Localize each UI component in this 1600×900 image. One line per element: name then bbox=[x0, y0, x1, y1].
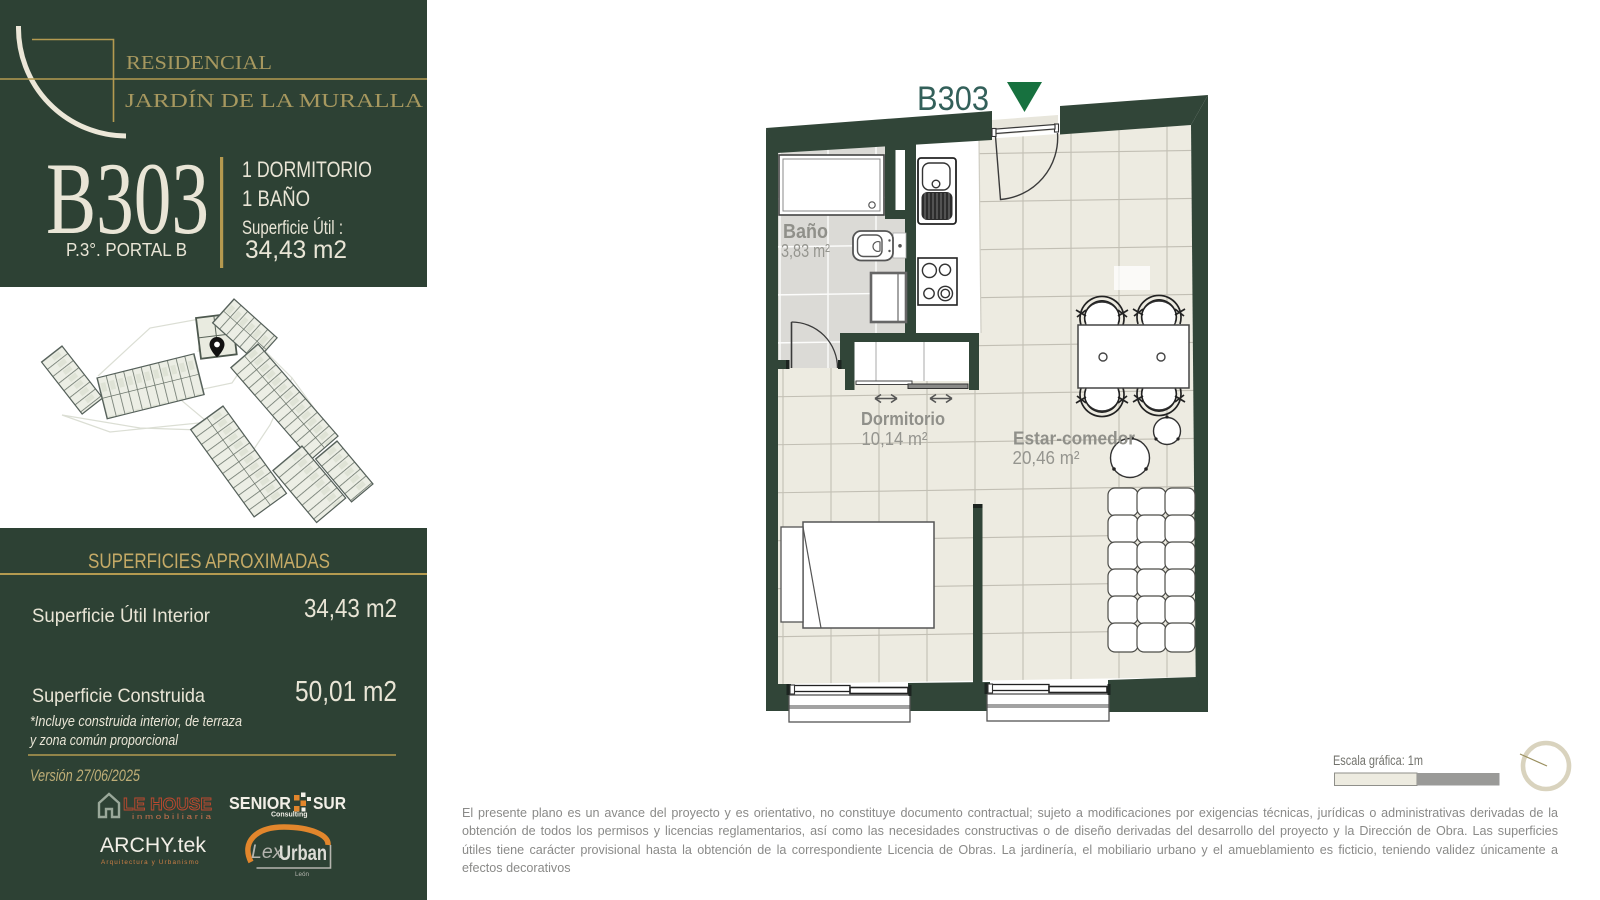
svg-text:León: León bbox=[295, 871, 310, 878]
svg-text:LE HOUSE: LE HOUSE bbox=[123, 794, 212, 814]
svg-text:1 BAÑO: 1 BAÑO bbox=[242, 186, 310, 211]
svg-text:20,46 m²: 20,46 m² bbox=[1013, 447, 1080, 468]
svg-text:1 DORMITORIO: 1 DORMITORIO bbox=[242, 157, 372, 182]
svg-text:Escala gráfica: 1m: Escala gráfica: 1m bbox=[1333, 753, 1423, 768]
svg-text:34,43 m2: 34,43 m2 bbox=[304, 593, 397, 623]
svg-text:Superficie Construida: Superficie Construida bbox=[32, 685, 205, 707]
svg-text:JARDÍN DE LA MURALLA: JARDÍN DE LA MURALLA bbox=[125, 89, 424, 112]
svg-text:y zona común proporcional: y zona común proporcional bbox=[29, 732, 178, 749]
svg-text:Dormitorio: Dormitorio bbox=[861, 408, 945, 429]
svg-text:SENIOR: SENIOR bbox=[229, 793, 291, 813]
svg-text:SUR: SUR bbox=[313, 793, 346, 813]
svg-text:Consulting: Consulting bbox=[271, 812, 308, 819]
svg-text:Superficie Útil Interior: Superficie Útil Interior bbox=[32, 604, 210, 627]
svg-text:34,43 m2: 34,43 m2 bbox=[245, 236, 347, 264]
svg-text:i n m o b i l i a r i a: i n m o b i l i a r i a bbox=[132, 812, 212, 821]
svg-text:Versión 27/06/2025: Versión 27/06/2025 bbox=[30, 766, 140, 785]
svg-text:RESIDENCIAL: RESIDENCIAL bbox=[126, 52, 272, 74]
svg-text:SUPERFICIES APROXIMADAS: SUPERFICIES APROXIMADAS bbox=[88, 550, 330, 573]
svg-text:*Incluye construida interior,: *Incluye construida interior, de terraza bbox=[30, 713, 242, 730]
svg-text:Arquitectura y Urbanismo: Arquitectura y Urbanismo bbox=[101, 859, 200, 866]
svg-text:3,83 m²: 3,83 m² bbox=[781, 240, 830, 261]
svg-text:50,01 m2: 50,01 m2 bbox=[295, 676, 397, 708]
svg-text:Estar-comedor: Estar-comedor bbox=[1013, 428, 1135, 449]
svg-text:10,14 m²: 10,14 m² bbox=[862, 428, 928, 449]
svg-text:P.3°. PORTAL B: P.3°. PORTAL B bbox=[66, 239, 187, 260]
svg-text:ARCHY.tek: ARCHY.tek bbox=[100, 834, 207, 857]
svg-text:Urban: Urban bbox=[279, 842, 327, 865]
